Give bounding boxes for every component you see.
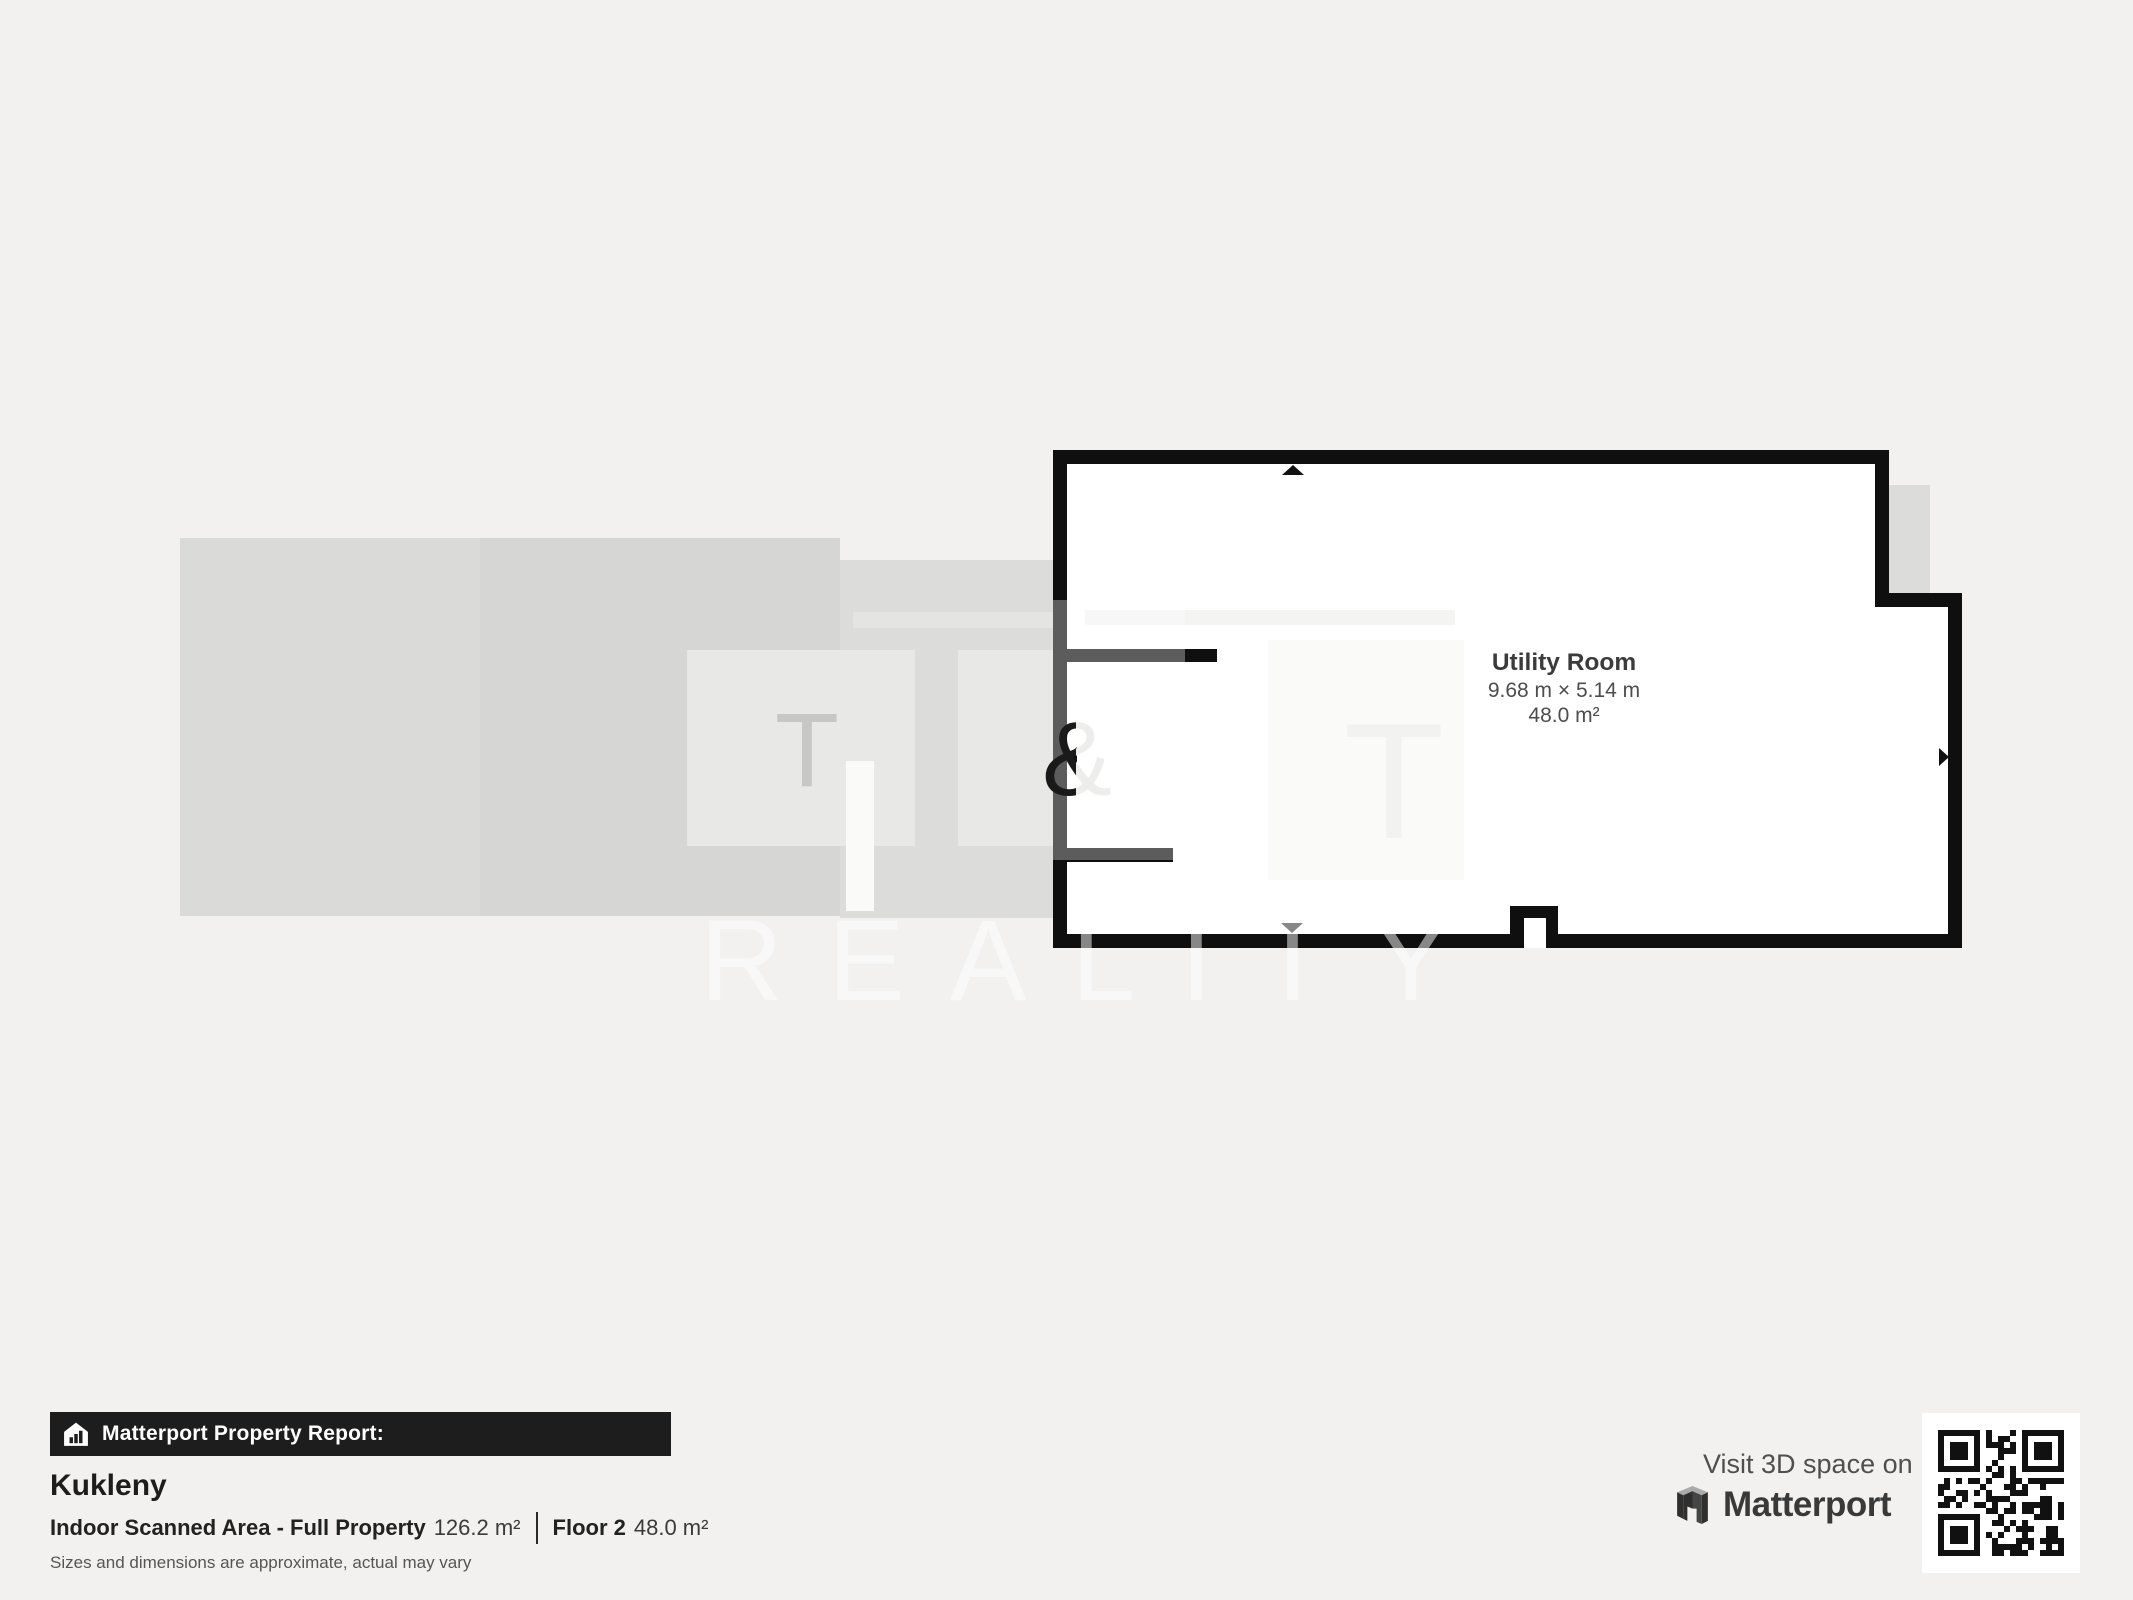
watermark-block-left xyxy=(180,538,480,916)
disclaimer-text: Sizes and dimensions are approximate, ac… xyxy=(50,1553,471,1573)
watermark-reality-text: REALITY xyxy=(700,897,1494,1025)
door-opening xyxy=(1524,918,1546,948)
matterport-m-icon xyxy=(1674,1484,1711,1525)
meta-separator xyxy=(536,1512,538,1544)
property-name: Kukleny xyxy=(50,1469,167,1503)
watermark-letter-t: T xyxy=(775,692,839,809)
matterport-wordmark: Matterport xyxy=(1723,1485,1891,1525)
scanned-area-value: 126.2 m² xyxy=(434,1515,521,1541)
room-name-label: Utility Room xyxy=(1492,649,1636,676)
visit-3d-text: Visit 3D space on xyxy=(1703,1449,1913,1480)
report-badge-label: Matterport Property Report: xyxy=(102,1422,384,1446)
qr-code[interactable] xyxy=(1922,1413,2080,1578)
room-area-label: 48.0 m² xyxy=(1528,704,1599,727)
property-report-page: T T Utility Room 9.68 m × 5.14 m 48.0 m²… xyxy=(0,0,2133,1600)
matterport-brand-link[interactable]: Matterport xyxy=(1674,1484,1891,1525)
watermark-white-bar xyxy=(846,761,874,911)
room-dimensions-label: 9.68 m × 5.14 m xyxy=(1488,679,1640,702)
scan-meta-line: Indoor Scanned Area - Full Property 126.… xyxy=(50,1512,708,1544)
watermark-block-notch xyxy=(1889,485,1930,593)
qr-code-image xyxy=(1922,1413,2080,1573)
floor-plan-scene: T T Utility Room 9.68 m × 5.14 m 48.0 m²… xyxy=(0,0,2133,1600)
report-badge: Matterport Property Report: xyxy=(50,1412,671,1456)
watermark-strip xyxy=(853,612,1055,628)
watermark-letter-t2: T xyxy=(1344,689,1445,873)
scanned-area-label: Indoor Scanned Area - Full Property xyxy=(50,1515,426,1541)
floor-area-value: 48.0 m² xyxy=(634,1515,709,1541)
house-bar-chart-icon xyxy=(63,1421,89,1447)
floor-label: Floor 2 xyxy=(553,1515,626,1541)
